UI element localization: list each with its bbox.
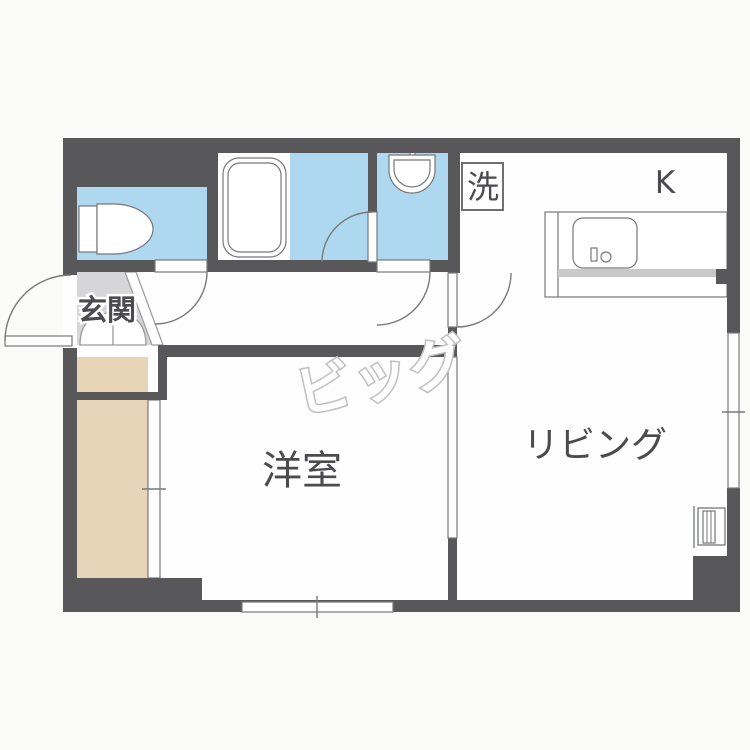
wall-hall-top-2	[207, 260, 377, 272]
wall-left-lower	[63, 348, 77, 612]
bathroom	[218, 153, 368, 260]
wall-closet-divider	[63, 392, 160, 400]
toilet-room	[77, 187, 207, 260]
bathtub-icon	[223, 158, 286, 257]
wall-bath-washroom	[368, 153, 377, 212]
living-room-label: リビング	[523, 425, 667, 466]
wall-right-upper	[727, 138, 740, 333]
washbasin-icon	[389, 151, 435, 193]
kitchen-label: K	[655, 165, 676, 201]
kitchen-counter	[545, 212, 727, 297]
laundry-area: 洗	[462, 163, 503, 210]
entrance-label: 玄関	[78, 293, 136, 327]
floorplan-svg: 洗	[0, 0, 750, 750]
washroom	[377, 151, 448, 260]
wall-block-bottom-left	[63, 578, 202, 602]
western-room-label: 洋室	[262, 448, 342, 494]
wall-room-divider-low	[448, 538, 457, 601]
closet-upper	[77, 357, 148, 392]
wall-pipe-space	[63, 153, 207, 187]
water-heater-icon	[694, 506, 725, 548]
wall-toilet-bath	[207, 153, 218, 260]
wall-top	[63, 138, 740, 153]
toilet-icon	[79, 204, 153, 254]
kitchen-sink-icon	[573, 218, 637, 268]
wall-washroom-right	[448, 153, 460, 273]
laundry-label: 洗	[467, 168, 499, 206]
wall-block-bottom-right	[693, 556, 740, 602]
wall-hall-top-1	[63, 260, 155, 272]
wall-hall-top-3	[430, 260, 456, 272]
floorplan-page: 洗	[0, 0, 750, 750]
entrance-door	[5, 275, 72, 346]
closet-lower	[77, 400, 148, 578]
